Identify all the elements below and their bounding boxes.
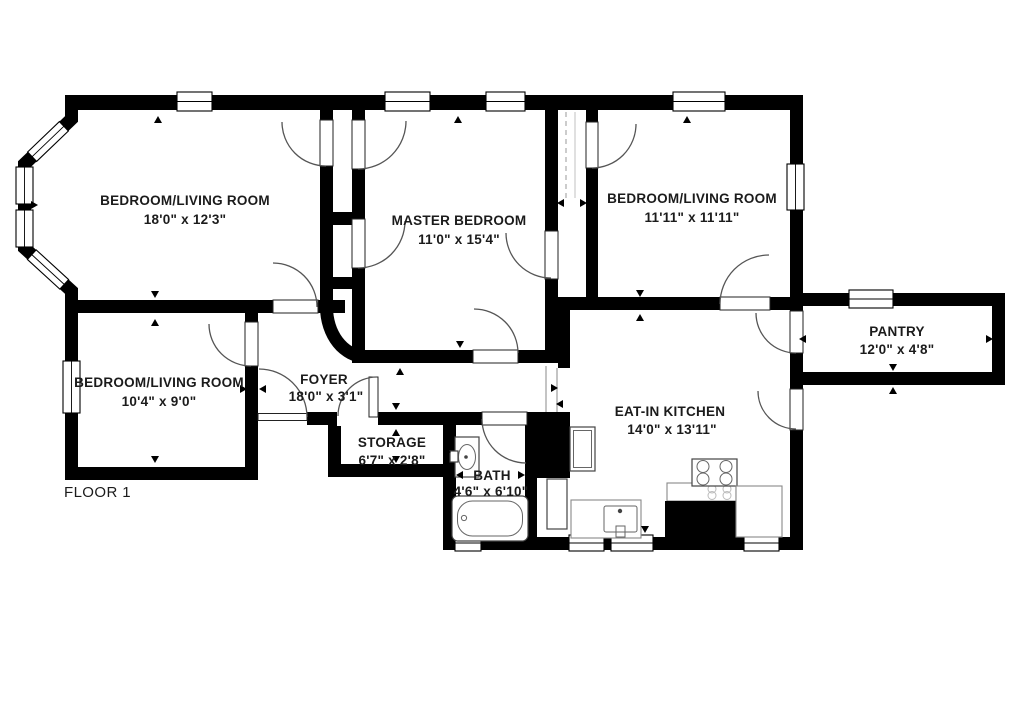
- appliance: [547, 479, 567, 529]
- window: [787, 164, 804, 210]
- window: [486, 92, 525, 111]
- floor-plan-page: BEDROOM/LIVING ROOM 18'0" x 12'3" MASTER…: [0, 0, 1024, 724]
- window: [16, 210, 33, 247]
- room-dims-bedroom-living-2: 11'11" x 11'11": [644, 210, 739, 225]
- window: [849, 290, 893, 308]
- room-dims-storage: 6'7" x 2'8": [358, 453, 425, 468]
- window: [27, 250, 68, 289]
- closet-rod: [566, 112, 575, 198]
- floor-title: FLOOR 1: [64, 484, 131, 501]
- kitchen-sink: [571, 500, 641, 538]
- bathtub: [452, 496, 528, 541]
- window: [16, 167, 33, 204]
- floor-plan: BEDROOM/LIVING ROOM 18'0" x 12'3" MASTER…: [0, 0, 1024, 724]
- room-dims-bedroom-living-3: 10'4" x 9'0": [122, 394, 197, 409]
- room-label-bath: BATH: [473, 468, 511, 483]
- room-dims-bath: 4'6" x 6'10": [454, 484, 529, 499]
- window: [28, 122, 69, 162]
- room-label-master-bedroom: MASTER BEDROOM: [392, 213, 527, 228]
- walls: [25, 95, 1006, 550]
- oven: [665, 501, 736, 539]
- room-label-pantry: PANTRY: [869, 324, 925, 339]
- room-dims-eat-in-kitchen: 14'0" x 13'11": [627, 422, 717, 437]
- window: [385, 92, 430, 111]
- room-label-storage: STORAGE: [358, 435, 426, 450]
- counter: [736, 486, 782, 537]
- room-dims-foyer: 18'0" x 3'1": [289, 389, 364, 404]
- window: [673, 92, 725, 111]
- room-label-eat-in-kitchen: EAT-IN KITCHEN: [615, 404, 726, 419]
- stove: [692, 459, 737, 486]
- room-label-foyer: FOYER: [300, 372, 348, 387]
- room-label-bedroom-living-2: BEDROOM/LIVING ROOM: [607, 191, 777, 206]
- window: [177, 92, 212, 111]
- room-label-bedroom-living-1: BEDROOM/LIVING ROOM: [100, 193, 270, 208]
- room-dims-master-bedroom: 11'0" x 15'4": [418, 232, 500, 247]
- room-dims-bedroom-living-1: 18'0" x 12'3": [144, 212, 227, 227]
- room-dims-pantry: 12'0" x 4'8": [860, 342, 935, 357]
- room-label-bedroom-living-3: BEDROOM/LIVING ROOM: [74, 375, 244, 390]
- refrigerator: [570, 427, 595, 471]
